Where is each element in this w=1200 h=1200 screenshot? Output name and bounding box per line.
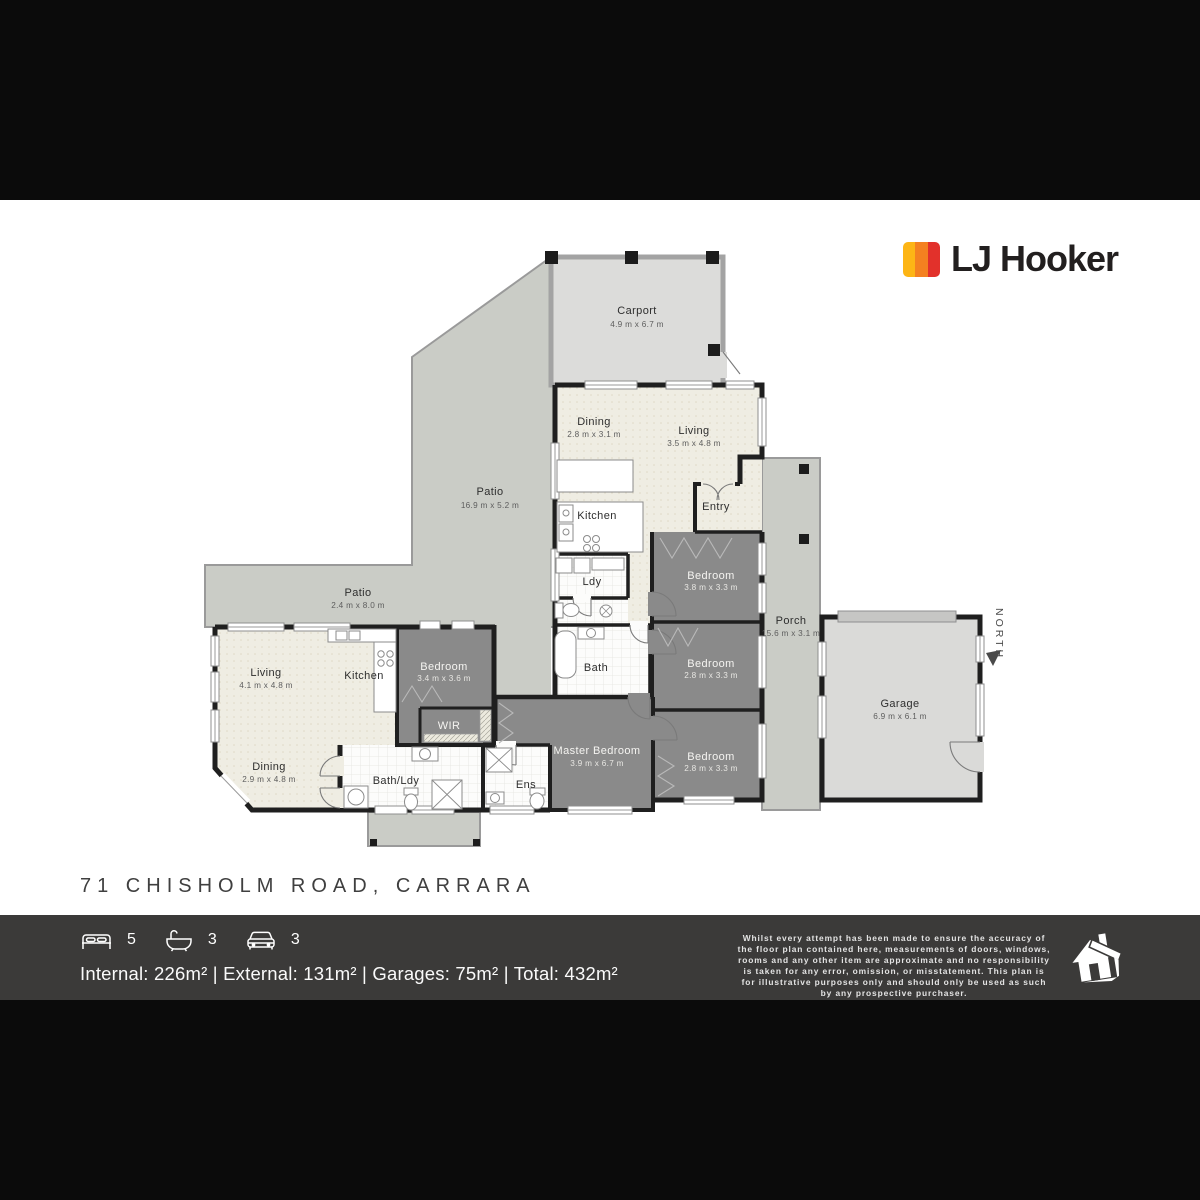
- patio-courtyard: [495, 625, 551, 697]
- label-entry: Entry: [702, 501, 730, 513]
- label-bedroom-se: Bedroom: [687, 751, 734, 763]
- label-kitchen-top: Kitchen: [577, 510, 617, 522]
- bathtub: [555, 631, 576, 678]
- label-porch: Porch: [776, 615, 807, 627]
- footer-bar: 5 3: [0, 915, 1200, 1000]
- top-black-bar: [0, 0, 1200, 200]
- dims-dining-top: 2.8 m x 3.1 m: [567, 430, 621, 439]
- label-carport: Carport: [617, 305, 656, 317]
- disclaimer-text: Whilst every attempt has been made to en…: [735, 933, 1053, 1000]
- property-stats: 5 3: [80, 927, 618, 985]
- deck-area: [368, 812, 480, 846]
- label-living-top: Living: [678, 425, 709, 437]
- dims-master: 3.9 m x 6.7 m: [570, 759, 624, 768]
- kitchen-island: [557, 460, 633, 492]
- label-kitchen-left: Kitchen: [344, 670, 384, 682]
- label-bedroom-mid: Bedroom: [420, 661, 467, 673]
- label-bedroom-e: Bedroom: [687, 658, 734, 670]
- bath-icon: [164, 928, 194, 952]
- page: LJ Hooker: [0, 0, 1200, 1200]
- label-garage: Garage: [880, 698, 919, 710]
- dims-carport: 4.9 m x 6.7 m: [610, 320, 664, 329]
- floor-plan: Carport 4.9 m x 6.7 m Patio 16.9 m x 5.2…: [0, 200, 1200, 915]
- stats-icons-row: 5 3: [80, 927, 618, 953]
- bath-count: 3: [208, 931, 217, 949]
- label-bedroom-ne: Bedroom: [687, 570, 734, 582]
- label-dining-top: Dining: [577, 416, 611, 428]
- car-icon: [245, 929, 277, 951]
- washer: [574, 558, 590, 573]
- dims-bedroom-mid: 3.4 m x 3.6 m: [417, 674, 471, 683]
- bottom-black-bar: [0, 1000, 1200, 1200]
- label-patio-left: Patio: [344, 587, 371, 599]
- areas-text: Internal: 226m² | External: 131m² | Gara…: [80, 963, 618, 985]
- house-icon: [1066, 927, 1128, 989]
- label-patio-top: Patio: [476, 486, 503, 498]
- label-wir: WIR: [438, 720, 461, 732]
- garage-door: [838, 611, 956, 622]
- label-ldy: Ldy: [583, 576, 602, 588]
- label-living-left: Living: [250, 667, 281, 679]
- address-text: 71 CHISHOLM ROAD, CARRARA: [80, 875, 536, 898]
- label-master: Master Bedroom: [554, 745, 641, 757]
- floorplan-canvas: LJ Hooker: [0, 200, 1200, 915]
- dims-dining-left: 2.9 m x 4.8 m: [242, 775, 296, 784]
- bed-count: 5: [127, 931, 136, 949]
- dims-garage: 6.9 m x 6.1 m: [873, 712, 927, 721]
- label-bath-ldy: Bath/Ldy: [373, 775, 420, 787]
- dims-living-top: 3.5 m x 4.8 m: [667, 439, 721, 448]
- dims-bedroom-ne: 3.8 m x 3.3 m: [684, 583, 738, 592]
- wc-toilet: [555, 603, 563, 618]
- laundry-tub: [556, 558, 572, 573]
- dims-bedroom-e: 2.8 m x 3.3 m: [684, 671, 738, 680]
- north-indicator: NORTH: [986, 608, 1005, 666]
- dims-porch: 15.6 m x 3.1 m: [762, 629, 820, 638]
- label-dining-left: Dining: [252, 761, 286, 773]
- patio-area: [205, 257, 557, 627]
- label-bath: Bath: [584, 662, 608, 674]
- car-count: 3: [291, 931, 300, 949]
- label-ens: Ens: [516, 779, 536, 791]
- dims-patio-top: 16.9 m x 5.2 m: [461, 501, 519, 510]
- bed-icon: [80, 929, 113, 951]
- dims-patio-left: 2.4 m x 8.0 m: [331, 601, 385, 610]
- dims-living-left: 4.1 m x 4.8 m: [239, 681, 293, 690]
- dims-bedroom-se: 2.8 m x 3.3 m: [684, 764, 738, 773]
